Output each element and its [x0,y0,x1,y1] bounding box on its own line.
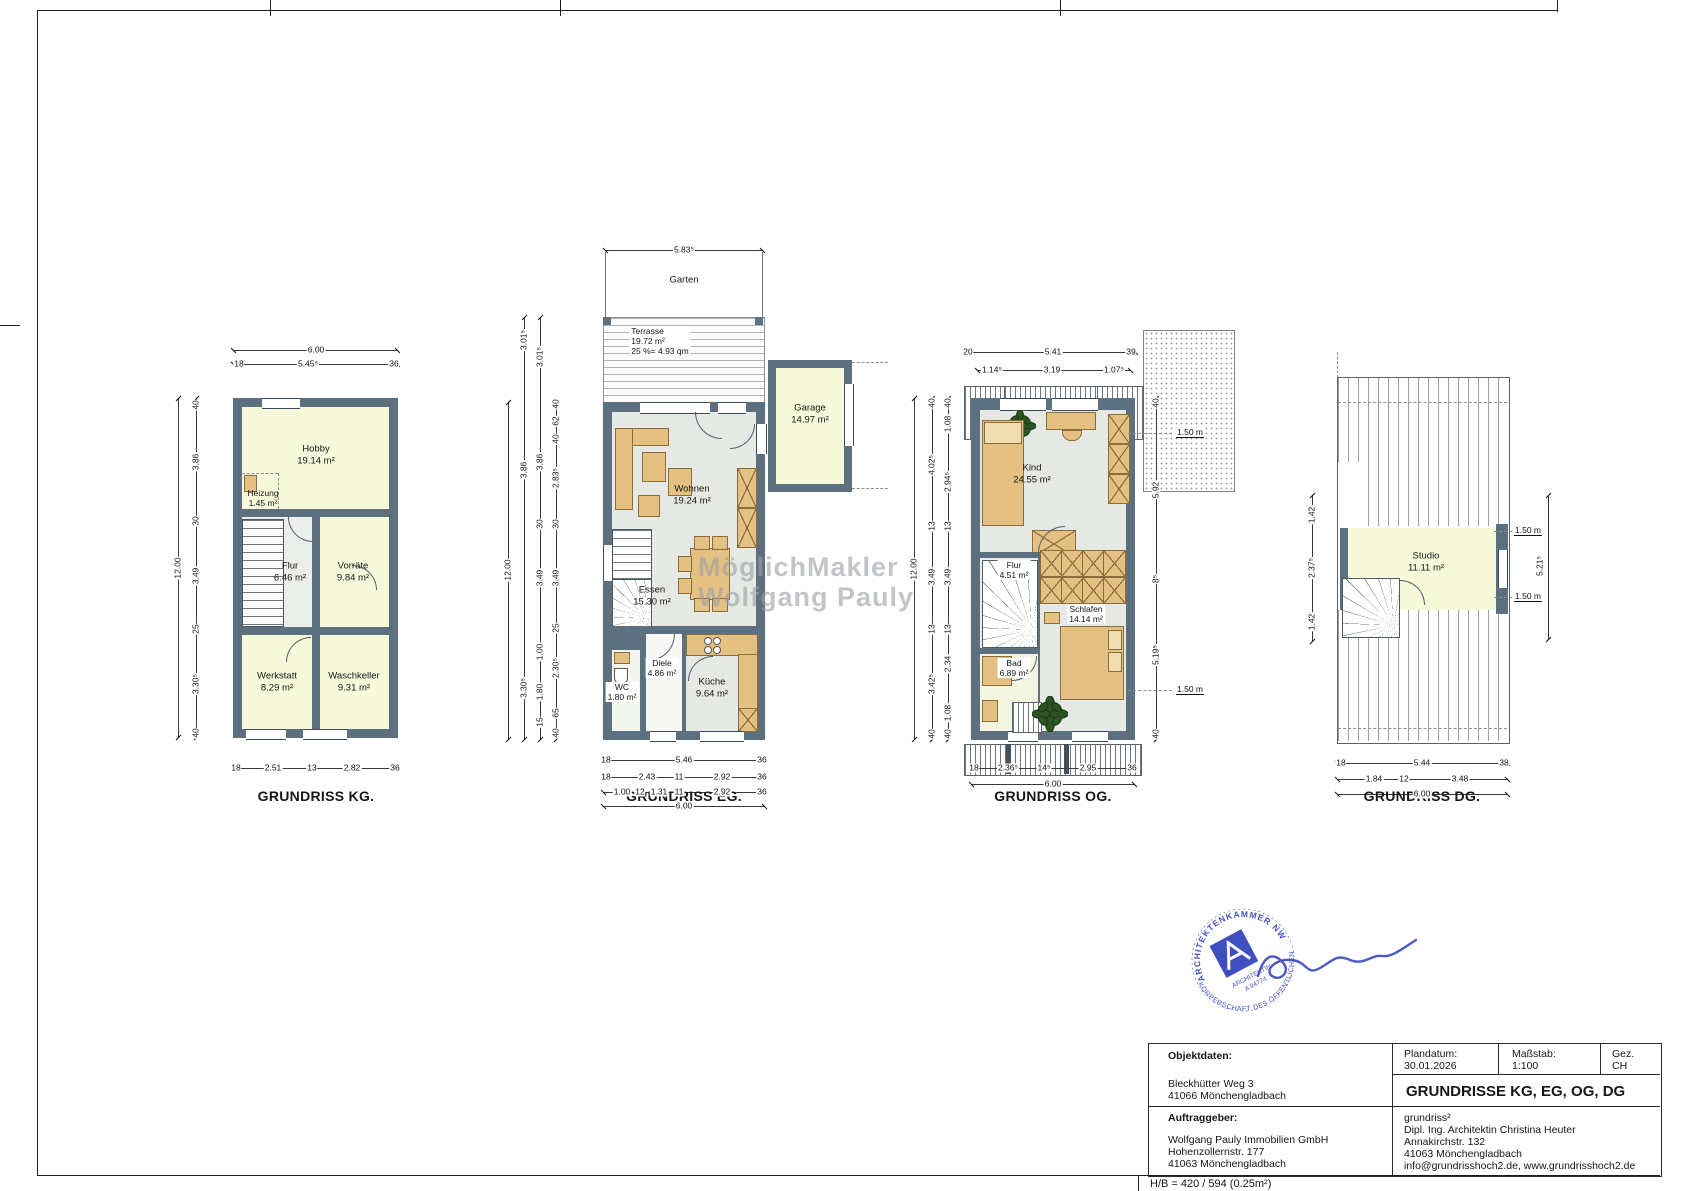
dim-label: 2.30⁵ [552,657,561,679]
room-name: Flur [274,561,306,573]
dim-label: 40 [552,727,561,738]
room-name: Werkstatt [257,671,297,683]
dim-label: 2.83⁵ [552,467,561,489]
dim-label: 5.45⁵ [297,360,319,369]
massstab: Maßstab: 1:100 [1512,1048,1556,1072]
dim-label: 8⁵ [1152,574,1161,584]
room-name: Garage [791,403,829,415]
drawing-title: GRUNDRISSE KG, EG, OG, DG [1406,1083,1625,1100]
room-label: Waschkeller 9.31 m² [328,671,379,694]
dim-label: 2.82 [343,764,362,773]
wardrobe [1108,414,1130,444]
garden-label: Garten [669,274,698,286]
dim-label: 65 [552,707,561,718]
room-area: 4.86 m² [648,668,677,678]
dim-label: 1.14⁵ [981,366,1003,375]
dim-label: 2.37⁵ [1308,557,1317,579]
auftraggeber-city: 41063 Mönchengladbach [1168,1158,1328,1170]
dim-label: 1.42 [1308,506,1317,525]
dim-label: 2.36⁵ [997,764,1019,773]
room-name: Waschkeller [328,671,379,683]
height-label: 1.50 m [1176,685,1204,695]
dim-label: 3.49 [928,568,937,587]
room-label: Essen 15.30 m² [633,585,671,608]
dim-label: 5.19⁵ [1152,644,1161,666]
architect-name: Dipl. Ing. Architektin Christina Heuter [1404,1124,1635,1136]
dim-label: 2.92 [713,773,732,782]
height-leader [1128,690,1172,691]
room-name: Studio [1408,551,1444,563]
room-name: Heizung [247,488,278,498]
objektdaten-label: Objektdaten: [1168,1050,1232,1062]
balcony-railing [964,744,1142,776]
dim-label: 25 [192,623,201,634]
pillow [1108,630,1122,650]
room-area: 1.80 m² [608,692,637,702]
dim-label: 2.92 [713,788,732,797]
cabinet [737,468,757,508]
chair [678,578,692,594]
room-area: 4.51 m² [1000,570,1029,580]
dim-label: 40 [944,728,953,739]
room-area: 9.31 m² [328,682,379,694]
dim-label: 18 [968,764,979,773]
dim-line [971,768,1135,769]
dim-label: 3.01⁵ [536,346,545,368]
dim-label: 40 [944,397,953,408]
dim-label: 1.07⁵ [1103,366,1125,375]
dim-label: 30 [536,518,545,529]
dim-label: 2.43 [638,773,657,782]
dim-label: 3.49 [944,568,953,587]
door-to-garage [756,424,767,454]
dim-label: 2.94⁵ [944,471,953,493]
room-name: Diele [648,658,677,668]
dim-label: 36 [756,773,767,782]
kitchen-counter [686,634,758,656]
nightstand [1044,612,1060,624]
dim-label: 5.44 [1413,759,1432,768]
interior-wall [312,635,320,729]
wardrobe [1103,577,1126,604]
dim-label: 18 [600,773,611,782]
height-leader [1494,531,1512,532]
dim-label: 12.00 [174,556,183,579]
gez-value: CH [1612,1060,1634,1072]
massstab-label: Maßstab: [1512,1048,1556,1060]
dim-line [1548,495,1549,640]
dim-label: 3.30⁵ [192,673,201,695]
room-label: Diele 4.86 m² [646,658,679,678]
roof-dashed-line [1338,402,1507,403]
watermark: MöglichMakler Wolfgang Pauly [698,552,914,612]
dim-label: 3.49 [192,567,201,586]
kitchen-counter [738,654,758,712]
room-name: Küche [696,677,728,689]
room-name: Kind [1013,463,1051,475]
wardrobe [1103,550,1126,577]
dim-label: 13 [928,520,937,531]
architect-firm: grundriss² [1404,1112,1635,1124]
dim-label: 6.00 [307,346,326,355]
dim-label: 40 [552,433,561,444]
gez-label: Gez. [1612,1048,1634,1060]
coffee-table [642,452,666,482]
dim-label: 4.02⁵ [928,454,937,476]
watermark-line2: Wolfgang Pauly [698,582,914,612]
fold-mark [560,0,561,16]
dim-label: 3.86 [192,453,201,472]
room-label: Bad 6.89 m² [998,658,1031,678]
room-area: 19.24 m² [673,495,711,507]
objekt-street: Bleckhütter Weg 3 [1168,1078,1286,1090]
dim-label: 36 [389,764,400,773]
bath-sink [982,700,998,722]
room-area: 11.11 m² [1408,562,1444,574]
room-garage [776,368,844,484]
dim-label: 14⁵ [1037,764,1052,773]
plandatum-value: 30.01.2026 [1404,1060,1457,1072]
dim-label: 40 [928,397,937,408]
wardrobe [1061,550,1084,577]
room-area: 19.72 m² [631,336,688,346]
dim-label: 18 [600,756,611,765]
interior-wall [242,627,389,635]
room-name: Hobby [297,444,335,456]
architect-contact: info@grundrisshoch2.de, www.grundrisshoc… [1404,1160,1635,1172]
dim-label: 20 [962,348,973,357]
garden-boundary [762,252,763,317]
height-leader [1128,433,1172,434]
interior-wall [603,626,765,634]
dim-label: 3.30⁵ [520,677,529,699]
dim-label: 40 [192,399,201,410]
dim-label: 13 [944,623,953,634]
room-label: Flur 4.51 m² [998,560,1031,580]
room-area: 9.84 m² [337,572,369,584]
cooktop-burner [713,637,721,645]
room-label: Hobby 19.14 m² [297,444,335,467]
massstab-value: 1:100 [1512,1060,1556,1072]
wardrobe [1040,550,1063,577]
drawing-sheet: { "sheet": { "hb_note": "H/B = 420 / 594… [0,0,1684,1191]
auftraggeber-street: Hohenzollernstr. 177 [1168,1146,1328,1158]
window [1498,550,1508,588]
room-area: 8.29 m² [257,682,297,694]
window [262,398,300,409]
dim-label: 2.51 [264,764,283,773]
dim-label: 40 [552,398,561,409]
fold-mark [1557,0,1558,12]
architect-street: Annakirchstr. 132 [1404,1136,1635,1148]
dim-label: 62 [552,415,561,426]
roof-surface-upper [1338,378,1507,526]
dim-label: 11 [674,788,685,797]
dim-label: 18 [233,360,244,369]
architect-info: grundriss² Dipl. Ing. Architektin Christ… [1404,1112,1635,1172]
room-name: Terrasse [631,326,688,336]
room-area: 1.45 m² [247,498,278,508]
dim-label: 1.08 [944,704,953,723]
cooktop-burner [704,637,712,645]
dim-label: 30 [192,515,201,526]
wc-sink [614,652,630,664]
dim-label: 1.00 [613,788,632,797]
room-label: Schlafen 14.14 m² [1067,604,1105,624]
room-name: Vorräte [337,561,369,573]
room-label: Vorräte 9.84 m² [337,561,369,584]
dim-label: 3.49 [552,569,561,588]
partition-dashed [242,473,278,474]
pillow [984,422,1022,444]
window [700,731,744,742]
height-label: 1.50 m [1514,592,1542,602]
signature [1258,940,1416,978]
dim-label: 30 [552,518,561,529]
plant-icon [1032,696,1068,732]
architect-city: 41063 Mönchengladbach [1404,1148,1635,1160]
dim-line [1156,398,1157,740]
room-label: Heizung 1.45 m² [247,488,278,508]
objekt-city: 41066 Mönchengladbach [1168,1090,1286,1102]
pillow [1108,652,1122,672]
title-block-divider [1600,1043,1601,1074]
interior-wall [312,517,320,627]
dim-label: 15 [536,716,545,727]
wardrobe [1040,577,1063,604]
plandatum-label: Plandatum: [1404,1048,1457,1060]
dim-label: 1.31 [650,788,669,797]
room-label: Flur 6.46 m² [274,561,306,584]
wardrobe [1082,577,1105,604]
room-label: WC 1.80 m² [606,682,639,702]
room-label: Küche 9.64 m² [696,677,728,700]
room-label: Garage 14.97 m² [791,403,829,426]
dim-label: 25 [552,622,561,633]
terrace-post [603,317,611,325]
dim-label: 6.00 [1044,780,1063,789]
wardrobe [1108,444,1130,474]
cabinet [737,508,757,548]
dim-label: 1.84 [1365,775,1384,784]
dim-label: 1.08 [944,415,953,434]
room-area: 24.55 m² [1013,474,1051,486]
dim-label: 12 [634,788,645,797]
room-area: 6.46 m² [274,572,306,584]
dim-label: 5.46 [675,756,694,765]
room-label: Werkstatt 8.29 m² [257,671,297,694]
railing-post [1064,744,1069,774]
dim-label: 3.86 [520,461,529,480]
room-name: Essen [633,585,671,597]
room-name: Bad [1000,658,1029,668]
chair [694,536,710,550]
armchair [638,495,660,517]
dim-label: 12 [1398,775,1409,784]
fold-mark [0,325,20,326]
gez: Gez. CH [1612,1048,1634,1072]
window [303,729,347,740]
height-leader [1494,597,1512,598]
dim-label: 6.00 [1413,790,1432,799]
dim-label: 1.42 [1308,613,1317,632]
window [1052,398,1098,411]
garage-door [844,384,854,446]
room-area: 14.14 m² [1069,614,1103,624]
dim-label: 18 [230,764,241,773]
auftraggeber-label: Auftraggeber: [1168,1112,1237,1124]
auftraggeber-name: Wolfgang Pauly Immobilien GmbH [1168,1134,1328,1146]
roof-dashed-line [1338,728,1507,729]
room-label: Wohnen 19.24 m² [673,484,711,507]
frame-divider [1138,1175,1139,1191]
dim-label: 5.21⁵ [1536,555,1545,577]
title-block-divider [1392,1043,1393,1175]
dim-label: 36 [756,788,767,797]
driveway-dashed [852,362,888,363]
dim-label: 40 [192,727,201,738]
room-name: Flur [1000,560,1029,570]
driveway-dashed [852,488,888,489]
dim-label: 3.42⁵ [928,673,937,695]
caption-og: GRUNDRISS OG. [994,788,1111,804]
wardrobe [1108,474,1130,504]
frame-left [37,10,38,1175]
dim-label: 39 [1125,348,1136,357]
roof-notch [1338,462,1360,526]
room-area: 19.14 m² [297,455,335,467]
staircase [1342,578,1400,638]
wardrobe [1061,577,1084,604]
dim-label: 11 [674,773,685,782]
axis-dashed [1337,352,1338,378]
dim-label: 2.95 [1079,764,1098,773]
dim-label: 13 [306,764,317,773]
dim-label: 3.19 [1043,366,1062,375]
window [246,729,286,740]
dim-label: 3.49 [536,569,545,588]
height-label: 1.50 m [1514,526,1542,536]
room-name: Wohnen [673,484,711,496]
room-area: 9.64 m² [696,688,728,700]
caption-kg: GRUNDRISS KG. [258,788,375,804]
room-name: Schlafen [1069,604,1103,614]
title-block-divider [1392,1074,1660,1075]
stamp-logo [1210,929,1259,978]
dim-label: 5.41 [1044,348,1063,357]
kitchen-cabinet [738,708,758,732]
balcony-door [1072,731,1108,742]
window [718,402,746,414]
cooktop-burner [704,646,712,654]
interior-wall [242,509,389,517]
fold-mark [270,0,271,16]
title-block-divider [1148,1106,1660,1107]
dim-label: 13 [928,623,937,634]
wardrobe [1082,550,1105,577]
dim-label: 40 [1152,728,1161,739]
dim-line [1337,779,1508,780]
entrance-door [650,731,676,742]
dim-label: 38 [1498,759,1509,768]
dim-label: 36 [388,360,399,369]
watermark-line1: MöglichMakler [698,552,914,582]
sheet-format-note: H/B = 420 / 594 (0.25m²) [1150,1178,1271,1190]
desk [1046,412,1096,430]
terrace-post [755,317,763,325]
dim-label: 40 [1152,397,1161,408]
dim-label: 3.01⁵ [520,329,529,351]
dim-label: 3.48 [1451,775,1470,784]
dim-label: 5.92 [1152,481,1161,500]
room-area: 15.30 m² [633,596,671,608]
plandatum: Plandatum: 30.01.2026 [1404,1048,1457,1072]
dim-label: 3.86 [536,453,545,472]
title-block-divider [1498,1043,1499,1074]
dim-label: 36 [1126,764,1137,773]
fold-mark [1060,0,1061,16]
dim-label: 36 [756,756,767,765]
frame-top [37,10,1557,11]
room-note: 25 %= 4.93 qm [631,346,688,356]
architect-stamp: ARCHITEKTENKAMMER NW KÖRPERSCHAFT DES ÖF… [1158,898,1428,1028]
height-label: 1.50 m [1176,428,1204,438]
dim-label: 1.00 [536,643,545,662]
dim-label: 40 [928,728,937,739]
room-label: Studio 11.11 m² [1408,551,1444,574]
sofa [615,428,633,510]
terrace-label: Terrasse 19.72 m² 25 %= 4.93 qm [629,326,690,356]
dim-label: 6.00 [675,802,694,811]
room-area: 6.89 m² [1000,668,1029,678]
dim-label: 2.34 [944,655,953,674]
garden-boundary [605,252,606,317]
room-label: Kind 24.55 m² [1013,463,1051,486]
auftraggeber-address: Wolfgang Pauly Immobilien GmbH Hohenzoll… [1168,1134,1328,1170]
room-area: 14.97 m² [791,414,829,426]
dim-label: 18 [1335,759,1346,768]
cooktop-burner [713,646,721,654]
objekt-address: Bleckhütter Weg 3 41066 Mönchengladbach [1168,1078,1286,1102]
staircase [612,529,652,581]
room-name: WC [608,682,637,692]
dim-label: 13 [944,520,953,531]
chair [678,556,692,572]
dim-label: 5.83⁵ [673,246,695,255]
chair [712,536,728,550]
dim-label: 1.80 [536,683,545,702]
dim-label: 12.00 [504,558,513,581]
